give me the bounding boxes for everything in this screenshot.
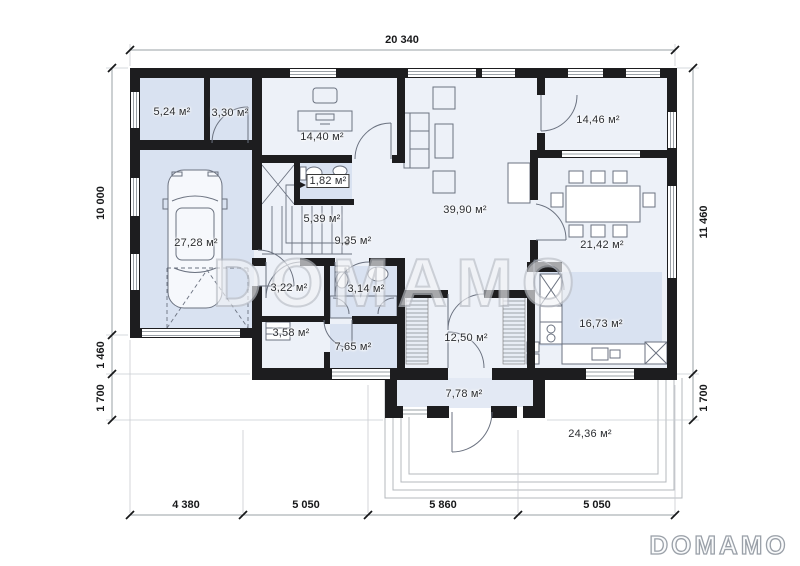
dim-left-3: 1 700 bbox=[95, 384, 107, 412]
room-label-office: 14,40 м² bbox=[300, 131, 343, 143]
room-label-room-2: 3,30 м² bbox=[211, 107, 248, 119]
room-label-porch: 7,78 м² bbox=[445, 388, 482, 400]
floor-plan-canvas: DOMAMO DOMAMO 20 340 10 000 1 460 1 700 … bbox=[0, 0, 800, 566]
dim-right-2: 1 700 bbox=[698, 384, 710, 412]
room-label-mudroom: 12,50 м² bbox=[444, 332, 487, 344]
dim-bottom-3: 5 860 bbox=[429, 499, 457, 511]
room-label-living-room: 39,90 м² bbox=[443, 204, 486, 216]
dim-top: 20 340 bbox=[385, 34, 419, 46]
dim-bottom-1: 4 380 bbox=[172, 499, 200, 511]
room-label-room-1: 5,24 м² bbox=[153, 106, 190, 118]
room-label-dining-room: 21,42 м² bbox=[580, 239, 623, 251]
room-label-bedroom: 14,46 м² bbox=[576, 114, 619, 126]
room-label-stairs: 5,39 м² bbox=[303, 213, 340, 225]
floor-plan-drawing bbox=[0, 0, 800, 566]
room-label-kitchen: 16,73 м² bbox=[579, 318, 622, 330]
room-label-terrace: 24,36 м² bbox=[568, 428, 611, 440]
brand-logo: DOMAMO bbox=[644, 530, 794, 561]
room-label-garage: 27,28 м² bbox=[174, 237, 217, 249]
dim-left-1: 10 000 bbox=[95, 186, 107, 220]
room-label-pantry: 3,58 м² bbox=[272, 327, 309, 339]
room-label-bathroom: 3,14 м² bbox=[347, 283, 384, 295]
dim-left-2: 1 460 bbox=[95, 341, 107, 369]
tv-unit-icon bbox=[508, 163, 530, 203]
room-label-wc: 1,82 м² bbox=[306, 174, 349, 188]
dim-bottom-2: 5 050 bbox=[292, 499, 320, 511]
room-label-hall: 9,35 м² bbox=[334, 235, 371, 247]
dim-bottom-4: 5 050 bbox=[583, 499, 611, 511]
room-label-closet: 3,22 м² bbox=[270, 282, 307, 294]
room-label-corridor: 7,65 м² bbox=[334, 341, 371, 353]
dim-right-1: 11 460 bbox=[698, 205, 710, 238]
